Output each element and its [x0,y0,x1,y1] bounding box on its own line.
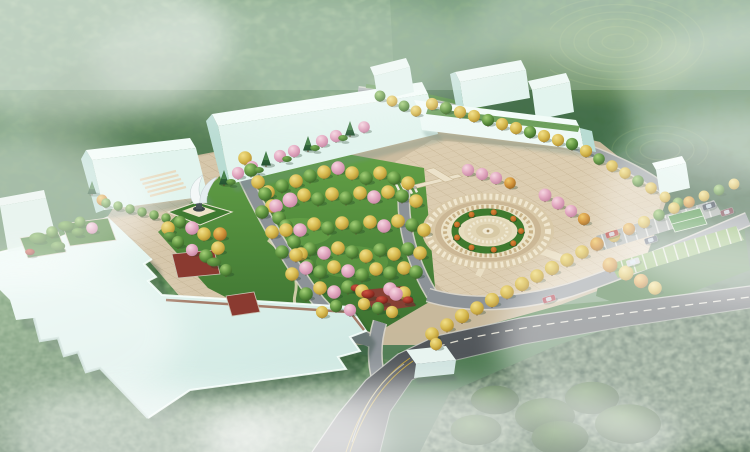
bush-canopy [226,179,236,185]
tree-canopy [538,130,550,142]
tree-canopy [397,261,411,275]
tree-canopy [331,241,345,255]
tree-canopy [490,172,502,184]
tree-canopy [353,186,367,200]
tree-canopy [417,223,431,237]
orange-flower-shrub [469,244,475,250]
tree-canopy [299,287,313,301]
tree-canopy [468,110,480,122]
tree-canopy [552,197,565,210]
tree-shadow [314,151,322,154]
tree-canopy [331,161,345,175]
tree-canopy [345,245,359,259]
tree-shadow [286,162,294,165]
tree-canopy [462,164,474,176]
tree-canopy [372,302,384,314]
tree-canopy [387,247,401,261]
tree-canopy [311,192,325,206]
tree-canopy [288,145,300,157]
tree-canopy [265,225,279,239]
tree-shadow [342,141,350,144]
tree-canopy [401,176,415,190]
tree-canopy [496,118,508,130]
bush-canopy [207,258,221,267]
tree-canopy [341,264,355,278]
tree-canopy [359,171,373,185]
tree-canopy [316,135,328,147]
orange-flower-shrub [491,247,497,253]
tree-canopy [321,221,335,235]
tree-canopy [504,177,516,189]
tree-canopy [377,219,391,233]
tree-canopy [387,171,401,185]
tree-canopy [363,215,377,229]
atmosphere-fade [0,0,750,90]
tree-canopy [454,106,466,118]
tree-canopy [401,242,415,256]
tree-canopy [430,338,442,350]
tree-canopy [335,216,349,230]
tree-canopy [510,122,522,134]
tree-canopy [185,221,199,235]
tree-canopy [539,189,552,202]
tree-canopy [269,199,283,213]
tree-canopy [409,194,423,208]
tree-canopy [405,218,419,232]
bush-canopy [282,156,292,162]
tree-canopy [325,187,339,201]
tree-canopy [317,246,331,260]
tree-canopy [565,205,577,217]
tree-canopy [358,298,370,310]
tree-canopy [174,216,186,228]
orange-flower-shrub [469,212,475,218]
tree-canopy [330,300,342,312]
tree-canopy [440,318,454,332]
tree-canopy [593,153,605,165]
tree-canopy [485,293,499,307]
tree-canopy [344,304,356,316]
tree-canopy [299,261,313,275]
tree-canopy [552,134,564,146]
tree-canopy [482,114,494,126]
tree-canopy [345,166,359,180]
orange-flower-shrub [510,216,516,222]
tree-canopy [327,285,341,299]
tree-canopy [500,285,514,299]
aerial-rendering: Aerial perspective rendering of a campus… [0,0,750,452]
tree-canopy [580,145,592,157]
tree-canopy [355,268,369,282]
orange-flower-shrub [454,222,460,228]
tree-canopy [566,138,578,150]
tree-canopy [373,243,387,257]
tree-canopy [285,267,299,281]
tree-canopy [349,220,363,234]
tree-canopy [470,301,484,315]
tree-canopy [386,306,398,318]
bush-canopy [338,135,348,141]
orange-flower-shrub [491,209,497,215]
plaza-center-dot [487,230,490,233]
tree-canopy [313,265,327,279]
tree-shadow [230,185,238,188]
tree-canopy [255,205,269,219]
tree-canopy [316,306,328,318]
tree-canopy [307,217,321,231]
red-shrub [403,296,414,303]
tree-canopy [287,235,301,249]
tree-canopy [391,214,405,228]
tree-canopy [289,174,303,188]
tree-canopy [213,227,227,241]
tree-canopy [367,190,381,204]
tree-canopy [197,227,211,241]
tree-canopy [358,121,370,133]
tree-canopy [289,248,303,262]
tree-canopy [413,246,427,260]
tree-canopy [339,191,353,205]
tree-canopy [476,168,488,180]
tree-canopy [395,189,409,203]
tree-canopy [258,187,272,201]
tree-canopy [303,169,317,183]
bush-canopy [254,167,264,173]
tree-canopy [279,223,293,237]
tree-canopy [297,188,311,202]
tree-canopy [275,245,289,259]
orange-flower-shrub [518,228,524,234]
scene-svg: Aerial perspective rendering of a campus… [0,0,750,452]
tree-canopy [186,244,198,256]
tree-canopy [327,260,341,274]
tree-canopy [369,262,383,276]
maroon-groundcover-bed [226,292,260,316]
tree-canopy [232,167,244,179]
tree-canopy [220,264,232,276]
tree-canopy [373,166,387,180]
tree-canopy [172,236,184,248]
tree-canopy [383,266,397,280]
tree-canopy [455,309,469,323]
tree-canopy [359,249,373,263]
tree-canopy [275,179,289,193]
orange-flower-shrub [454,234,460,240]
tree-canopy [524,126,536,138]
orange-flower-shrub [510,240,516,246]
tree-canopy [409,265,423,279]
tree-canopy [578,213,590,225]
bush-canopy [310,145,320,151]
tree-canopy [313,281,327,295]
tree-canopy [283,193,298,208]
red-shrub [361,290,374,299]
tree-canopy [293,223,307,237]
tree-canopy [211,241,225,255]
tree-canopy [251,175,265,189]
tree-canopy [389,287,403,301]
tree-canopy [381,185,395,199]
tree-canopy [317,165,331,179]
